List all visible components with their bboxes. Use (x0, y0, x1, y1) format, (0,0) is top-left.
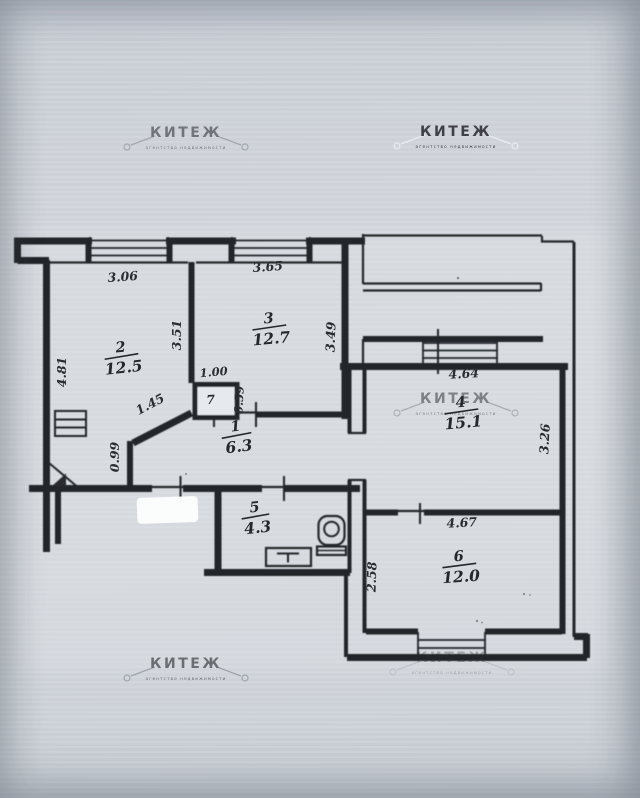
watermark-brand: КИТЕЖ (150, 656, 222, 672)
dim-room2-top: 3.06 (107, 268, 139, 285)
room-area: 4.3 (243, 516, 272, 538)
watermark-flourish (124, 144, 130, 150)
room-area: 12.7 (252, 327, 291, 349)
watermark-tagline: агентство недвижимости (416, 411, 497, 416)
room-number: 2 (114, 339, 127, 357)
watermark-flourish (394, 143, 400, 149)
window-room2 (90, 237, 168, 259)
floor-plan-photo: 2 12.5 3 12.7 1 6.3 7 4 15.1 5 4.3 6 (0, 0, 640, 798)
dim-closet-width: 1.00 (199, 364, 228, 380)
watermark-brand: КИТЕЖ (150, 125, 222, 141)
watermark-top-right: КИТЕЖ агентство недвижимости (394, 124, 518, 149)
dim-room4-bottom: 4.67 (446, 514, 477, 531)
watermark-tagline: агентство недвижимости (416, 144, 497, 149)
watermark-tagline: агентство недвижимости (146, 145, 227, 150)
room-number: 1 (229, 417, 241, 435)
watermark-flourish (124, 675, 130, 681)
dim-closet-depth: 0.59 (231, 385, 246, 414)
room-number: 5 (249, 499, 261, 517)
watermark-tagline: агентство недвижимости (412, 670, 493, 675)
room-area: 12.0 (442, 566, 481, 588)
dim-room3-right: 3.49 (322, 321, 338, 352)
redaction-patch (137, 496, 199, 524)
dim-room4-right: 3.26 (536, 423, 553, 454)
dim-room4-top: 4.64 (448, 365, 479, 382)
dim-room2-left: 4.81 (54, 357, 69, 387)
watermark-flourish (242, 675, 248, 681)
window-room3 (232, 237, 310, 259)
dim-room2-right: 3.51 (169, 320, 184, 350)
dim-vestibule-left: 0.99 (107, 441, 122, 472)
room-area: 6.3 (224, 435, 253, 457)
watermark-top-left: КИТЕЖ агентство недвижимости (124, 125, 248, 150)
watermark-flourish (242, 144, 248, 150)
watermark-brand: КИТЕЖ (416, 650, 488, 666)
watermark-brand: КИТЕЖ (420, 391, 492, 407)
room-number: 6 (453, 548, 464, 566)
room-label-7: 7 (206, 392, 216, 408)
watermark-brand: КИТЕЖ (420, 124, 492, 140)
watermark-tagline: агентство недвижимости (146, 676, 227, 681)
watermark-flourish (512, 143, 518, 149)
room-number: 3 (263, 310, 275, 328)
room-area: 12.5 (104, 356, 144, 379)
floor-plan-svg: 2 12.5 3 12.7 1 6.3 7 4 15.1 5 4.3 6 (0, 0, 640, 798)
room-number: 7 (206, 392, 216, 408)
dim-room3-top: 3.65 (252, 258, 283, 275)
dim-room6-left: 2.58 (363, 561, 379, 593)
